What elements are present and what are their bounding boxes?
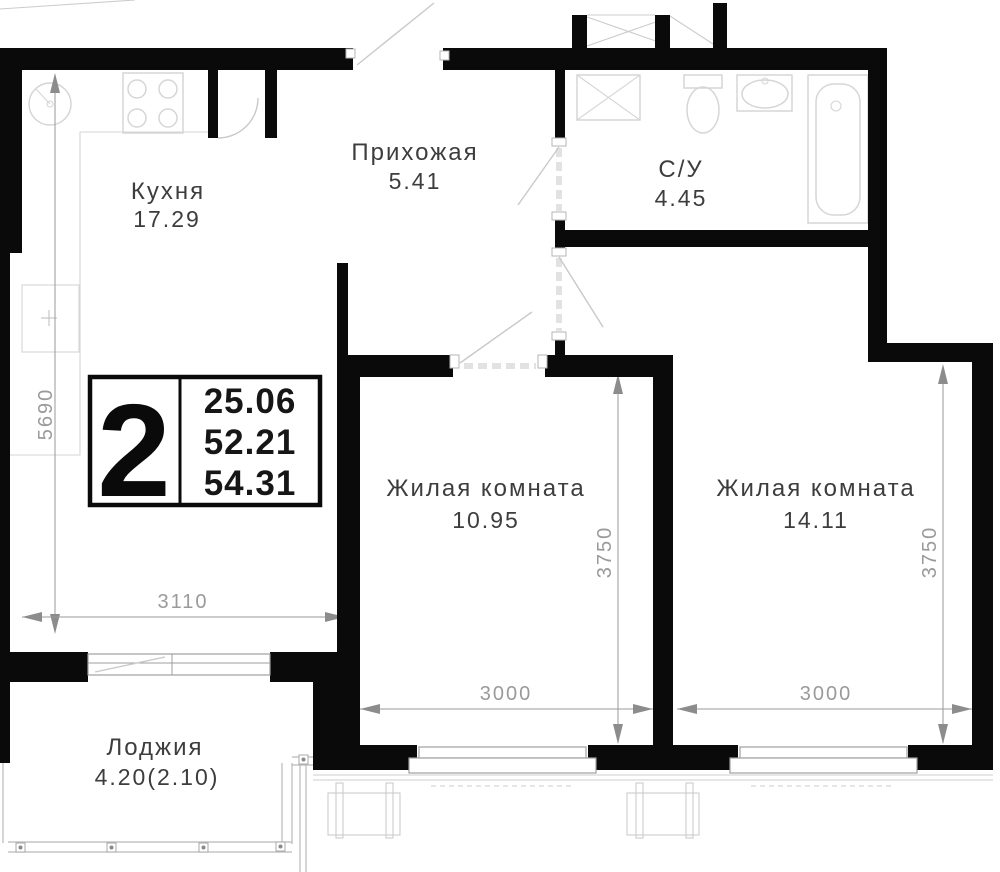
bathroom-fixtures: [577, 75, 868, 223]
room-area-bathroom: 4.45: [655, 185, 708, 211]
badge-area-living: 25.06: [204, 382, 297, 421]
badge-room-count: 2: [97, 377, 170, 524]
loggia-window-door: [88, 654, 270, 675]
toilet-icon: [684, 75, 722, 133]
badge-area-main: 52.21: [204, 423, 297, 462]
apartment-badge: 2 25.06 52.21 54.31: [90, 377, 320, 524]
room-label-loggia: Лоджия: [106, 734, 203, 761]
entry-jamb: [440, 51, 449, 60]
shower-tray-icon: [577, 75, 640, 120]
room-label-kitchen: Кухня: [131, 178, 205, 205]
room-area-kitchen: 17.29: [133, 206, 201, 232]
room-area-hallway: 5.41: [389, 168, 442, 194]
room2-window: [730, 747, 917, 773]
dim-kitchen-height: 5690: [35, 388, 57, 441]
niche-door-arc: [218, 98, 258, 138]
room1-window: [409, 747, 596, 773]
lower-balcony-outline: [328, 793, 400, 835]
entry-jamb: [346, 49, 355, 58]
floor-plan-page: 5690 3110 3750 3000 3750 3000: [0, 0, 1000, 872]
room-label-living1: Жилая комната: [386, 475, 585, 502]
room-area-living2: 14.11: [783, 507, 849, 533]
dim-room1-width: 3000: [480, 683, 533, 705]
room-area-living1: 10.95: [452, 507, 520, 533]
floor-plan-svg: 5690 3110 3750 3000 3750 3000: [0, 0, 1000, 872]
room1-door-swing: [460, 312, 532, 363]
room-label-living2: Жилая комната: [716, 475, 915, 502]
badge-area-total: 54.31: [204, 464, 297, 503]
corridor-door-swing: [559, 257, 603, 327]
dim-room1-height: 3750: [594, 526, 616, 579]
entry-door-leaf: [357, 3, 434, 65]
bathroom-door-swing: [518, 147, 559, 205]
dim-kitchen-width: 3110: [157, 591, 208, 613]
dim-room2-height: 3750: [919, 526, 941, 579]
dim-room2-width: 3000: [800, 683, 853, 705]
room-label-hallway: Прихожая: [351, 139, 478, 166]
stove-icon: [123, 73, 183, 133]
room-label-bathroom: С/У: [658, 156, 703, 183]
room-area-loggia: 4.20(2.10): [95, 764, 220, 790]
bathtub-icon: [808, 75, 868, 223]
lower-balcony-outline: [627, 793, 699, 835]
washbasin-icon: [737, 75, 792, 111]
